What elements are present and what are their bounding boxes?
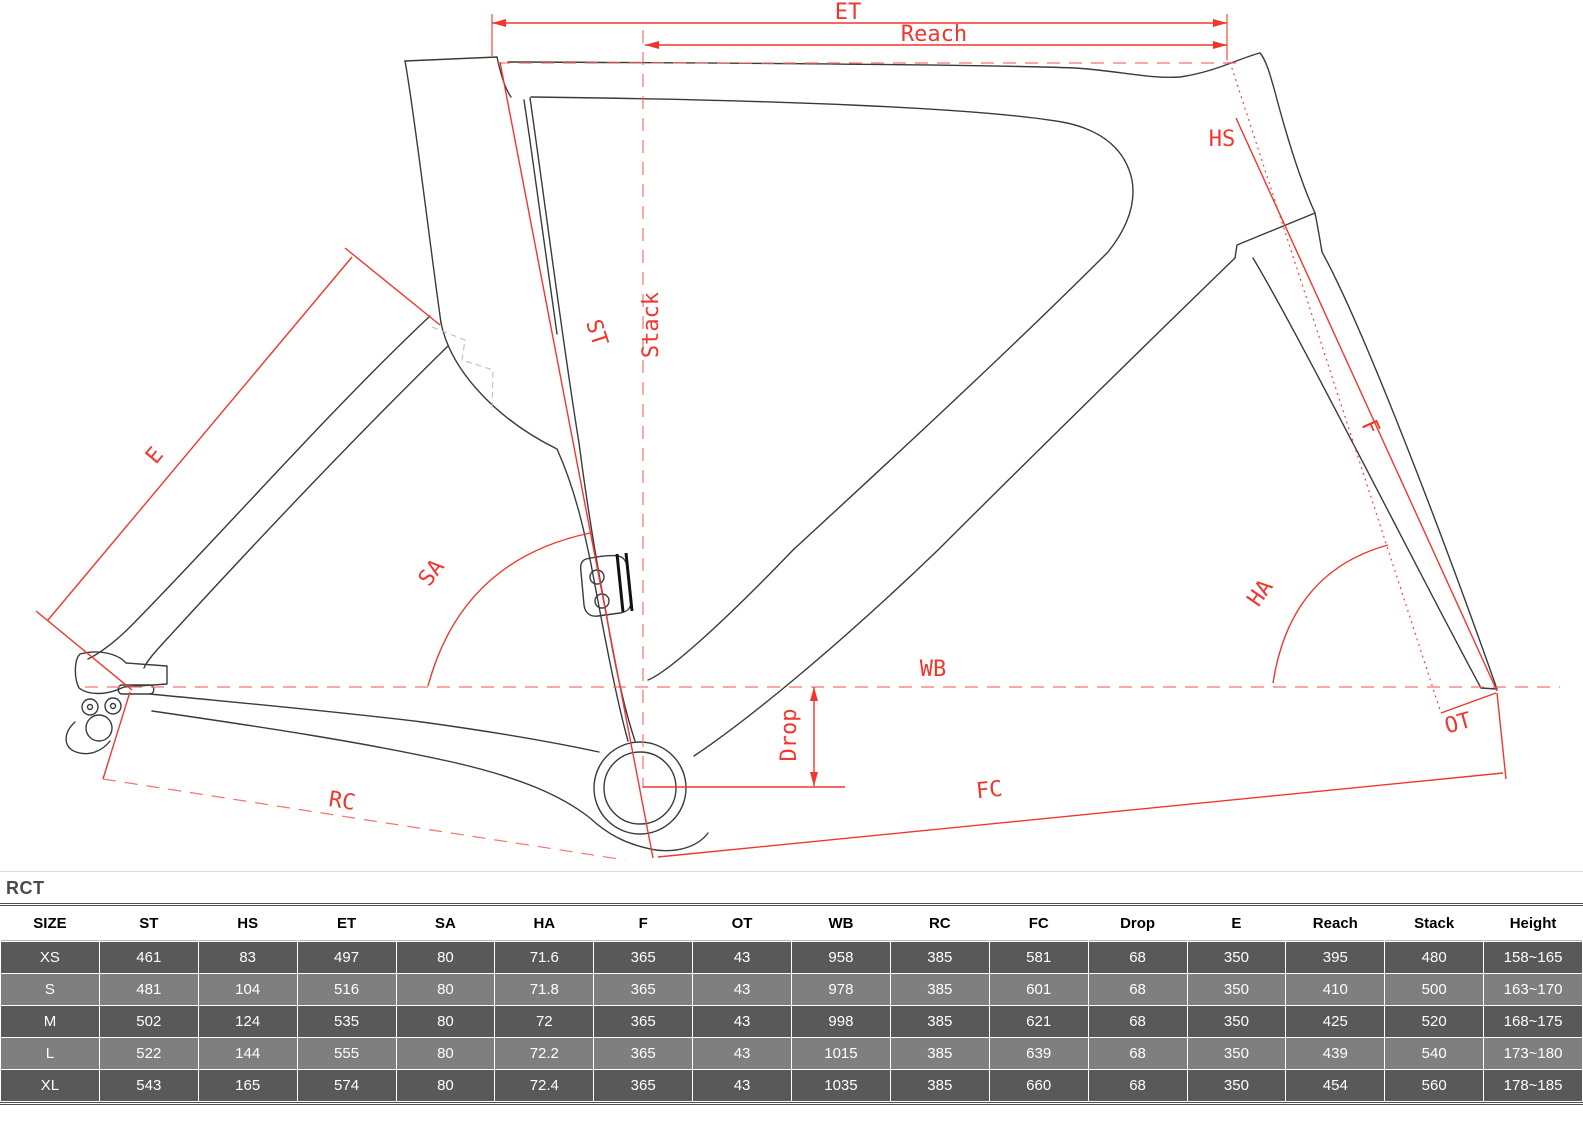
head-angle-arc xyxy=(1273,545,1388,683)
column-header-rc: RC xyxy=(891,907,989,941)
value-cell: 350 xyxy=(1188,942,1286,973)
column-header-reach: Reach xyxy=(1286,907,1384,941)
value-cell: 958 xyxy=(792,942,890,973)
value-cell: 500 xyxy=(1385,974,1483,1005)
column-header-ot: OT xyxy=(693,907,791,941)
rc-label: RC xyxy=(327,787,357,816)
fork-length-line xyxy=(1236,118,1497,691)
geometry-table-wrap: SIZESTHSETSAHAFOTWBRCFCDropEReachStackHe… xyxy=(0,903,1583,1105)
frame-geometry-diagram: ET Reach HS ST Stack E SA F HA WB Drop O… xyxy=(0,0,1583,871)
reach-label: Reach xyxy=(901,22,967,47)
value-cell: 1035 xyxy=(792,1070,890,1101)
value-cell: 461 xyxy=(100,942,198,973)
column-header-ha: HA xyxy=(495,907,593,941)
column-header-drop: Drop xyxy=(1089,907,1187,941)
value-cell: 43 xyxy=(693,1038,791,1069)
value-cell: 68 xyxy=(1089,1038,1187,1069)
size-cell: L xyxy=(1,1038,99,1069)
value-cell: 385 xyxy=(891,1006,989,1037)
geometry-table-header: SIZESTHSETSAHAFOTWBRCFCDropEReachStackHe… xyxy=(1,907,1582,941)
value-cell: 144 xyxy=(199,1038,297,1069)
column-header-f: F xyxy=(594,907,692,941)
column-header-hs: HS xyxy=(199,907,297,941)
value-cell: 535 xyxy=(298,1006,396,1037)
value-cell: 497 xyxy=(298,942,396,973)
et-label: ET xyxy=(835,0,862,25)
value-cell: 173~180 xyxy=(1484,1038,1582,1069)
value-cell: 481 xyxy=(100,974,198,1005)
e-dimension-line xyxy=(48,257,352,620)
value-cell: 80 xyxy=(397,1070,495,1101)
e-label: E xyxy=(141,443,169,469)
value-cell: 522 xyxy=(100,1038,198,1069)
value-cell: 163~170 xyxy=(1484,974,1582,1005)
value-cell: 72.4 xyxy=(495,1070,593,1101)
value-cell: 365 xyxy=(594,974,692,1005)
value-cell: 439 xyxy=(1286,1038,1384,1069)
value-cell: 978 xyxy=(792,974,890,1005)
value-cell: 425 xyxy=(1286,1006,1384,1037)
column-header-fc: FC xyxy=(990,907,1088,941)
column-header-e: E xyxy=(1188,907,1286,941)
column-header-st: ST xyxy=(100,907,198,941)
value-cell: 560 xyxy=(1385,1070,1483,1101)
front-derailleur-mount xyxy=(581,553,632,616)
value-cell: 621 xyxy=(990,1006,1088,1037)
value-cell: 158~165 xyxy=(1484,942,1582,973)
size-cell: S xyxy=(1,974,99,1005)
column-header-height: Height xyxy=(1484,907,1582,941)
seat-angle-arc xyxy=(428,533,590,686)
value-cell: 168~175 xyxy=(1484,1006,1582,1037)
size-cell: XL xyxy=(1,1070,99,1101)
value-cell: 68 xyxy=(1089,942,1187,973)
value-cell: 68 xyxy=(1089,974,1187,1005)
value-cell: 480 xyxy=(1385,942,1483,973)
table-row-l: L5221445558072.2365431015385639683504395… xyxy=(1,1038,1582,1069)
value-cell: 43 xyxy=(693,942,791,973)
sa-label: SA xyxy=(414,555,450,591)
value-cell: 43 xyxy=(693,974,791,1005)
value-cell: 72 xyxy=(495,1006,593,1037)
stack-label: Stack xyxy=(639,292,664,358)
ot-offset-tick xyxy=(1441,693,1496,713)
value-cell: 80 xyxy=(397,942,495,973)
table-row-xl: XL5431655748072.436543103538566068350454… xyxy=(1,1070,1582,1101)
seat-tube-axis xyxy=(500,62,653,858)
value-cell: 365 xyxy=(594,1006,692,1037)
ot-label: OT xyxy=(1442,708,1474,739)
bike-frame-drawing: ET Reach HS ST Stack E SA F HA WB Drop O… xyxy=(0,0,1583,871)
internal-routing-dashed xyxy=(432,327,493,412)
value-cell: 1015 xyxy=(792,1038,890,1069)
value-cell: 540 xyxy=(1385,1038,1483,1069)
value-cell: 178~185 xyxy=(1484,1070,1582,1101)
value-cell: 385 xyxy=(891,974,989,1005)
rear-axle-extension xyxy=(103,692,130,779)
value-cell: 502 xyxy=(100,1006,198,1037)
column-header-sa: SA xyxy=(397,907,495,941)
table-title: RCT xyxy=(0,872,1583,903)
value-cell: 601 xyxy=(990,974,1088,1005)
rc-dimension-dashed xyxy=(103,779,625,860)
value-cell: 581 xyxy=(990,942,1088,973)
value-cell: 350 xyxy=(1188,1038,1286,1069)
value-cell: 80 xyxy=(397,1038,495,1069)
size-cell: M xyxy=(1,1006,99,1037)
value-cell: 998 xyxy=(792,1006,890,1037)
value-cell: 410 xyxy=(1286,974,1384,1005)
value-cell: 574 xyxy=(298,1070,396,1101)
value-cell: 71.8 xyxy=(495,974,593,1005)
column-header-stack: Stack xyxy=(1385,907,1483,941)
value-cell: 165 xyxy=(199,1070,297,1101)
value-cell: 83 xyxy=(199,942,297,973)
value-cell: 71.6 xyxy=(495,942,593,973)
value-cell: 104 xyxy=(199,974,297,1005)
value-cell: 555 xyxy=(298,1038,396,1069)
value-cell: 43 xyxy=(693,1006,791,1037)
value-cell: 385 xyxy=(891,942,989,973)
value-cell: 68 xyxy=(1089,1070,1187,1101)
value-cell: 395 xyxy=(1286,942,1384,973)
st-label: ST xyxy=(580,317,612,350)
value-cell: 80 xyxy=(397,1006,495,1037)
value-cell: 350 xyxy=(1188,974,1286,1005)
page: { "diagram": { "labels": { "et": "ET", "… xyxy=(0,0,1583,1139)
value-cell: 454 xyxy=(1286,1070,1384,1101)
hs-label: HS xyxy=(1209,127,1236,152)
column-header-et: ET xyxy=(298,907,396,941)
fc-dimension-line xyxy=(658,773,1503,857)
dimension-labels: ET Reach HS ST Stack E SA F HA WB Drop O… xyxy=(141,0,1474,816)
geometry-table-body: XS461834978071.6365439583855816835039548… xyxy=(1,942,1582,1101)
value-cell: 365 xyxy=(594,942,692,973)
value-cell: 639 xyxy=(990,1038,1088,1069)
table-row-m: M502124535807236543998385621683504255201… xyxy=(1,1006,1582,1037)
geometry-table: SIZESTHSETSAHAFOTWBRCFCDropEReachStackHe… xyxy=(0,906,1583,1102)
size-cell: XS xyxy=(1,942,99,973)
value-cell: 520 xyxy=(1385,1006,1483,1037)
value-cell: 43 xyxy=(693,1070,791,1101)
value-cell: 72.2 xyxy=(495,1038,593,1069)
value-cell: 385 xyxy=(891,1038,989,1069)
value-cell: 543 xyxy=(100,1070,198,1101)
header-row: SIZESTHSETSAHAFOTWBRCFCDropEReachStackHe… xyxy=(1,907,1582,941)
table-row-s: S4811045168071.8365439783856016835041050… xyxy=(1,974,1582,1005)
value-cell: 365 xyxy=(594,1070,692,1101)
column-header-wb: WB xyxy=(792,907,890,941)
steering-axis-dotted xyxy=(1230,62,1441,713)
table-row-xs: XS461834978071.6365439583855816835039548… xyxy=(1,942,1582,973)
geometry-table-section: RCT SIZESTHSETSAHAFOTWBRCFCDropEReachSta… xyxy=(0,871,1583,1105)
rear-dropout xyxy=(66,652,167,754)
value-cell: 124 xyxy=(199,1006,297,1037)
value-cell: 68 xyxy=(1089,1006,1187,1037)
ha-label: HA xyxy=(1243,575,1279,611)
value-cell: 350 xyxy=(1188,1070,1286,1101)
value-cell: 365 xyxy=(594,1038,692,1069)
wb-label: WB xyxy=(920,657,947,682)
value-cell: 660 xyxy=(990,1070,1088,1101)
value-cell: 80 xyxy=(397,974,495,1005)
drop-label: Drop xyxy=(777,709,802,762)
value-cell: 516 xyxy=(298,974,396,1005)
front-axle-extension xyxy=(1497,693,1506,779)
column-header-size: SIZE xyxy=(1,907,99,941)
value-cell: 385 xyxy=(891,1070,989,1101)
fc-label: FC xyxy=(975,777,1004,805)
value-cell: 350 xyxy=(1188,1006,1286,1037)
